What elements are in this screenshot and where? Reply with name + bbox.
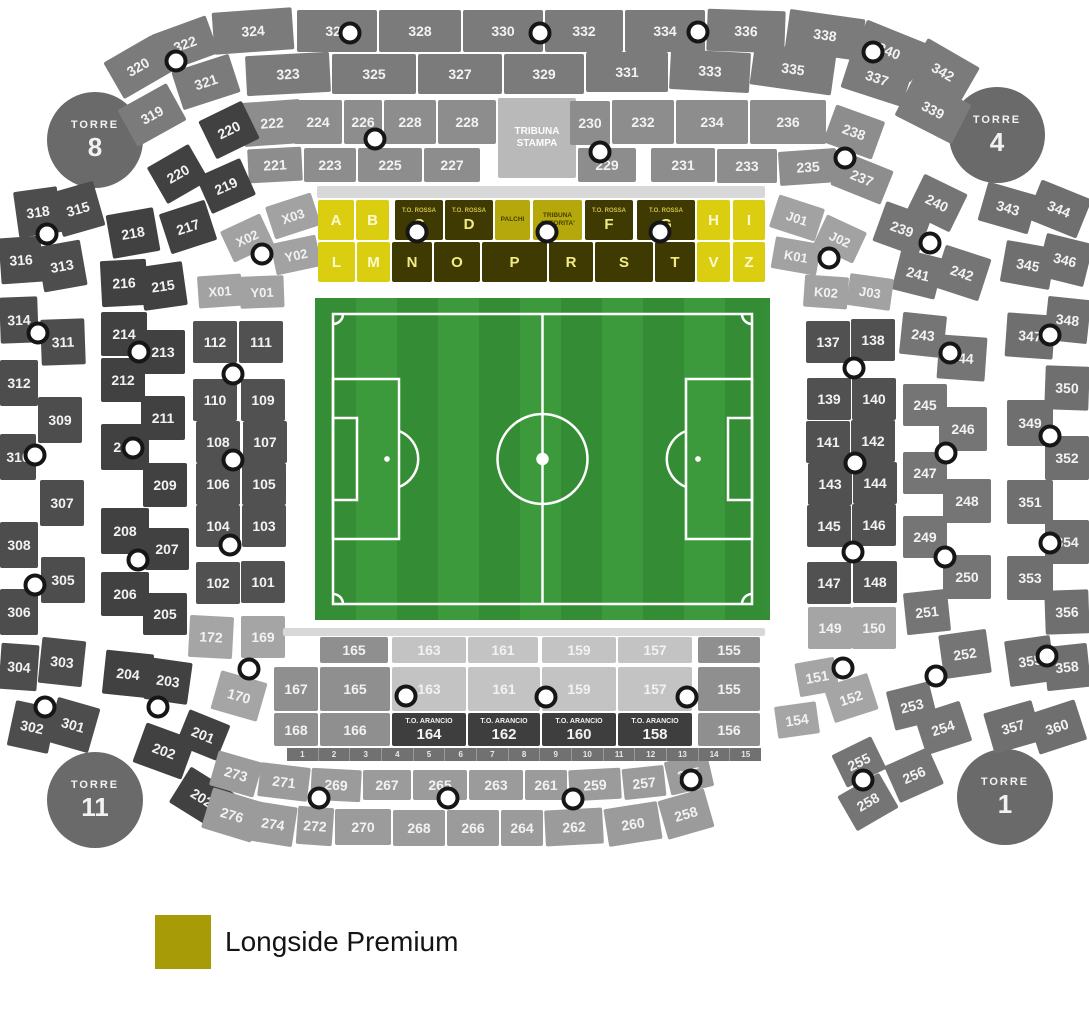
label-line: 11 [81,794,109,820]
section-103[interactable]: 103 [242,505,286,547]
gate-marker [818,247,841,270]
label-line: T.O. ROSSA [402,208,436,214]
section-169[interactable]: 169 [241,616,285,658]
pitch [315,298,770,620]
row-number: 9 [539,748,571,761]
section-248[interactable]: 248 [943,479,991,523]
section-251[interactable]: 251 [903,589,951,635]
section-stampa: TRIBUNASTAMPA [498,98,576,178]
section-245[interactable]: 245 [903,384,947,426]
label-line: T.O. ARANCIO [631,718,678,725]
section-307[interactable]: 307 [40,480,84,526]
section-261[interactable]: 261 [525,770,567,800]
section-i[interactable]: I [733,200,765,240]
section-267[interactable]: 267 [363,770,411,800]
section-309[interactable]: 309 [38,397,82,443]
gate-marker [395,685,418,708]
row-number: 11 [603,748,635,761]
gate-marker [27,322,50,345]
label-line: 164 [416,727,441,742]
section-x01[interactable]: X01 [197,274,243,309]
section-s[interactable]: S [595,242,653,282]
section-228[interactable]: 228 [438,100,496,144]
section-209[interactable]: 209 [143,463,187,507]
label-line: T.O. ARANCIO [555,718,602,725]
label-line: T.O. ROSSA [452,208,486,214]
row-number: 5 [413,748,445,761]
gate-marker [562,788,585,811]
gate-marker [676,686,699,709]
section-r[interactable]: R [549,242,593,282]
section-m[interactable]: M [357,242,390,282]
label-line: T.O. ARANCIO [405,718,452,725]
label-line: T.O. ROSSA [649,208,683,214]
section-221[interactable]: 221 [247,147,303,184]
label-line: TORRE [71,780,119,791]
section-f[interactable]: T.O. ROSSAF [585,200,633,240]
section-313[interactable]: 313 [36,240,87,293]
section-137[interactable]: 137 [806,321,850,363]
section-205[interactable]: 205 [143,593,187,635]
section-145[interactable]: 145 [807,505,851,547]
label-line: 160 [566,727,591,742]
row-number: 3 [349,748,381,761]
section-236[interactable]: 236 [750,100,826,144]
section-140[interactable]: 140 [852,378,896,420]
section-220[interactable]: 220 [147,144,210,204]
section-y01[interactable]: Y01 [239,275,284,309]
section-170[interactable]: 170 [210,670,267,722]
section-225[interactable]: 225 [358,148,422,182]
section-172[interactable]: 172 [188,615,234,659]
section-360[interactable]: 360 [1027,699,1088,754]
section-107[interactable]: 107 [243,421,287,463]
row-number: 13 [666,748,698,761]
section-a[interactable]: A [318,200,354,240]
section-271[interactable]: 271 [257,762,311,802]
section-323[interactable]: 323 [245,52,331,96]
section-266[interactable]: 266 [447,810,499,846]
section-k02[interactable]: K02 [803,275,849,310]
gate-marker [934,546,957,569]
section-168[interactable]: 168 [274,713,318,746]
section-149[interactable]: 149 [808,607,852,649]
section-231[interactable]: 231 [651,148,715,182]
section-233[interactable]: 233 [717,149,777,183]
gate-marker [308,787,331,810]
label-line: STAMPA [517,139,558,149]
walkway [317,186,765,198]
gate-marker [1036,645,1059,668]
section-d[interactable]: T.O. ROSSAD [445,200,493,240]
row-number: 8 [508,748,540,761]
section-138[interactable]: 138 [851,319,895,361]
gate-marker [34,696,57,719]
section-227[interactable]: 227 [424,148,480,182]
section-x03[interactable]: X03 [265,192,321,239]
section-160[interactable]: T.O. ARANCIO160 [542,713,616,746]
gate-marker [649,221,672,244]
row-number: 4 [381,748,413,761]
section-11: TORRE11 [47,752,143,848]
section-308[interactable]: 308 [0,522,38,568]
label-line: T.O. ROSSA [592,208,626,214]
section-148[interactable]: 148 [853,561,897,603]
section-147[interactable]: 147 [807,562,851,604]
section-1: TORRE1 [957,749,1053,845]
section-356[interactable]: 356 [1044,589,1089,635]
gate-marker [680,769,703,792]
section-241[interactable]: 241 [892,248,945,299]
gate-marker [36,223,59,246]
section-k01[interactable]: K01 [771,236,822,276]
gate-marker [364,128,387,151]
section-206[interactable]: 206 [101,572,149,616]
row-number: 2 [318,748,350,761]
label-line: 158 [642,727,667,742]
section-272[interactable]: 272 [296,806,335,846]
gate-marker [536,221,559,244]
gate-marker [406,221,429,244]
section-165[interactable]: 165 [320,667,390,711]
section-164[interactable]: T.O. ARANCIO164 [392,713,466,746]
section-159[interactable]: 159 [542,637,616,663]
section-232[interactable]: 232 [612,100,674,144]
section-332[interactable]: 332 [545,10,623,52]
section-105[interactable]: 105 [242,463,286,505]
section-312[interactable]: 312 [0,360,38,406]
section-l[interactable]: L [318,242,355,282]
section-256[interactable]: 256 [884,747,944,803]
section-167[interactable]: 167 [274,667,318,711]
gate-marker [122,437,145,460]
section-305[interactable]: 305 [41,557,85,603]
gate-marker [834,147,857,170]
section-274[interactable]: 274 [248,801,298,847]
gate-marker [687,21,710,44]
section-154[interactable]: 154 [774,701,820,739]
section-218[interactable]: 218 [106,207,161,259]
section-palchi[interactable]: PALCHI [495,200,530,240]
section-270[interactable]: 270 [335,809,391,845]
label-line: TRIBUNA [515,127,560,137]
label-line: D [464,217,475,232]
section-325[interactable]: 325 [332,54,416,94]
section-150[interactable]: 150 [852,607,896,649]
section-303[interactable]: 303 [38,637,87,687]
gate-marker [24,574,47,597]
section-158[interactable]: T.O. ARANCIO158 [618,713,692,746]
section-262[interactable]: 262 [544,808,604,847]
section-331[interactable]: 331 [586,52,668,92]
section-264[interactable]: 264 [501,810,543,846]
section-207[interactable]: 207 [145,528,189,570]
gate-marker [24,444,47,467]
section-102[interactable]: 102 [196,562,240,604]
label-line: F [604,217,613,232]
section-141[interactable]: 141 [806,421,850,463]
section-316[interactable]: 316 [0,236,44,285]
row-number: 15 [729,748,761,761]
gate-marker [939,342,962,365]
gate-marker [529,22,552,45]
section-224[interactable]: 224 [294,100,342,144]
label-line: 162 [491,727,516,742]
gate-marker [843,357,866,380]
gate-marker [238,658,261,681]
row-number: 6 [444,748,476,761]
section-155[interactable]: 155 [698,667,760,711]
section-139[interactable]: 139 [807,378,851,420]
walkway [283,628,765,636]
section-b[interactable]: B [356,200,389,240]
gate-marker [339,22,362,45]
gate-marker [535,686,558,709]
section-223[interactable]: 223 [304,148,356,182]
gate-marker [251,243,274,266]
section-257[interactable]: 257 [621,765,666,800]
gate-marker [1039,532,1062,555]
section-165[interactable]: 165 [320,637,388,663]
section-230[interactable]: 230 [570,101,610,145]
section-p[interactable]: P [482,242,547,282]
section-161[interactable]: 161 [468,637,538,663]
gate-marker [844,452,867,475]
section-163[interactable]: 163 [392,637,466,663]
label-line: 4 [990,129,1004,155]
section-h[interactable]: H [697,200,730,240]
section-z[interactable]: Z [733,242,765,282]
gate-marker [852,769,875,792]
legend: Longside Premium [155,915,458,969]
section-327[interactable]: 327 [418,54,502,94]
section-351[interactable]: 351 [1007,480,1053,524]
section-228[interactable]: 228 [384,100,436,144]
section-112[interactable]: 112 [193,321,237,363]
section-161[interactable]: 161 [468,667,540,711]
label-line: 1 [998,791,1012,817]
gate-marker [589,141,612,164]
row-number: 7 [476,748,508,761]
gate-marker [128,341,151,364]
section-326[interactable]: 326 [297,10,377,52]
gate-marker [437,787,460,810]
section-101[interactable]: 101 [241,561,285,603]
row-number: 10 [571,748,603,761]
row-number: 14 [698,748,730,761]
section-157[interactable]: 157 [618,637,692,663]
section-328[interactable]: 328 [379,10,461,52]
section-324[interactable]: 324 [212,7,295,54]
section-o[interactable]: O [434,242,480,282]
label-line: TRIBUNA [543,213,572,220]
gate-marker [842,541,865,564]
label-line: TORRE [71,120,119,131]
section-v[interactable]: V [697,242,730,282]
gate-marker [919,232,942,255]
row-number-strip: 123456789101112131415 [287,748,761,761]
section-268[interactable]: 268 [393,810,445,846]
section-212[interactable]: 212 [101,358,145,402]
section-260[interactable]: 260 [603,801,662,847]
section-263[interactable]: 263 [469,770,523,800]
section-y02[interactable]: Y02 [270,235,322,276]
gate-marker [222,363,245,386]
legend-label: Longside Premium [225,926,458,958]
gate-marker [1039,324,1062,347]
label-line: T.O. ARANCIO [480,718,527,725]
label-line: 8 [88,134,102,160]
gate-marker [935,442,958,465]
section-166[interactable]: 166 [320,713,390,746]
legend-swatch-longside-premium [155,915,211,969]
section-t[interactable]: T [655,242,695,282]
row-number: 12 [634,748,666,761]
gate-marker [127,549,150,572]
section-162[interactable]: T.O. ARANCIO162 [468,713,540,746]
section-344[interactable]: 344 [1026,179,1089,238]
section-242[interactable]: 242 [932,245,991,302]
label-line: TORRE [981,777,1029,788]
section-n[interactable]: N [392,242,432,282]
section-155[interactable]: 155 [698,637,760,663]
section-333[interactable]: 333 [669,49,751,93]
section-111[interactable]: 111 [239,321,283,363]
label-line: TORRE [973,115,1021,126]
gate-marker [862,41,885,64]
section-234[interactable]: 234 [676,100,748,144]
section-156[interactable]: 156 [698,713,760,746]
section-215[interactable]: 215 [138,261,188,311]
section-304[interactable]: 304 [0,643,40,692]
gate-marker [832,657,855,680]
gate-marker [147,696,170,719]
gate-marker [925,665,948,688]
gate-marker [165,50,188,73]
section-258[interactable]: 258 [657,788,714,840]
gate-marker [222,449,245,472]
gate-marker [1039,425,1062,448]
stadium-seat-map: 123456789101112131415 Longside Premium T… [0,0,1089,1032]
section-j03[interactable]: J03 [846,273,894,311]
section-329[interactable]: 329 [504,54,584,94]
section-146[interactable]: 146 [852,504,896,546]
gate-marker [219,534,242,557]
section-109[interactable]: 109 [241,379,285,421]
section-235[interactable]: 235 [778,148,838,186]
row-number: 1 [287,748,318,761]
section-208[interactable]: 208 [101,508,149,554]
